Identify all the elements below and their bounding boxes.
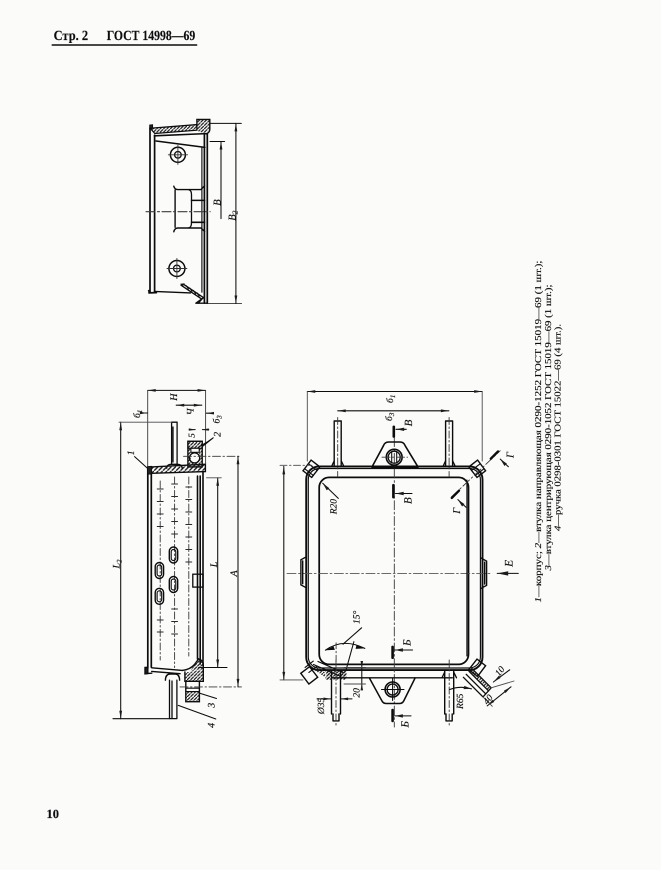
svg-text:б3: б3 [213, 415, 224, 424]
svg-text:10: 10 [494, 665, 508, 679]
svg-text:3: 3 [207, 703, 218, 709]
svg-text:Г: Г [452, 507, 463, 515]
svg-text:б1: б1 [133, 410, 144, 418]
svg-text:1—корпус; 2—втулка направляюща: 1—корпус; 2—втулка направляющая 0290-125… [533, 261, 543, 603]
svg-text:15°: 15° [352, 610, 362, 624]
svg-text:10: 10 [47, 807, 60, 821]
svg-text:L: L [209, 561, 220, 568]
svg-text:Стр. 2: Стр. 2 [54, 29, 89, 44]
svg-text:В: В [402, 497, 414, 504]
svg-text:20: 20 [352, 688, 362, 698]
svg-text:б1: б1 [386, 395, 397, 403]
svg-text:2: 2 [213, 432, 224, 437]
svg-text:3—втулка центрирующая 0290-105: 3—втулка центрирующая 0290-1052 ГОСТ 150… [543, 285, 553, 572]
svg-text:R65: R65 [456, 693, 466, 710]
svg-text:Е: Е [504, 560, 516, 568]
svg-text:5: 5 [186, 433, 196, 438]
svg-text:R20: R20 [330, 499, 340, 516]
svg-text:В: В [212, 199, 223, 206]
svg-text:Н: Н [169, 393, 180, 402]
svg-text:4—ручка 0298-0301 ГОСТ 15022—6: 4—ручка 0298-0301 ГОСТ 15022—69 (4 шт.). [553, 324, 563, 531]
svg-text:Б: Б [400, 720, 412, 728]
svg-text:4: 4 [207, 723, 218, 728]
svg-text:А: А [229, 570, 240, 578]
svg-text:В2: В2 [228, 210, 240, 220]
svg-text:В: В [403, 419, 415, 426]
svg-text:Ø35: Ø35 [317, 697, 327, 715]
svg-text:Ч: Ч [186, 407, 197, 415]
svg-text:Г: Г [505, 451, 516, 459]
svg-text:ГОСТ 14998—69: ГОСТ 14998—69 [107, 29, 196, 44]
svg-text:L2: L2 [112, 559, 124, 570]
svg-text:б3: б3 [385, 412, 396, 421]
svg-text:Б: Б [401, 639, 413, 647]
svg-text:1: 1 [126, 450, 137, 455]
